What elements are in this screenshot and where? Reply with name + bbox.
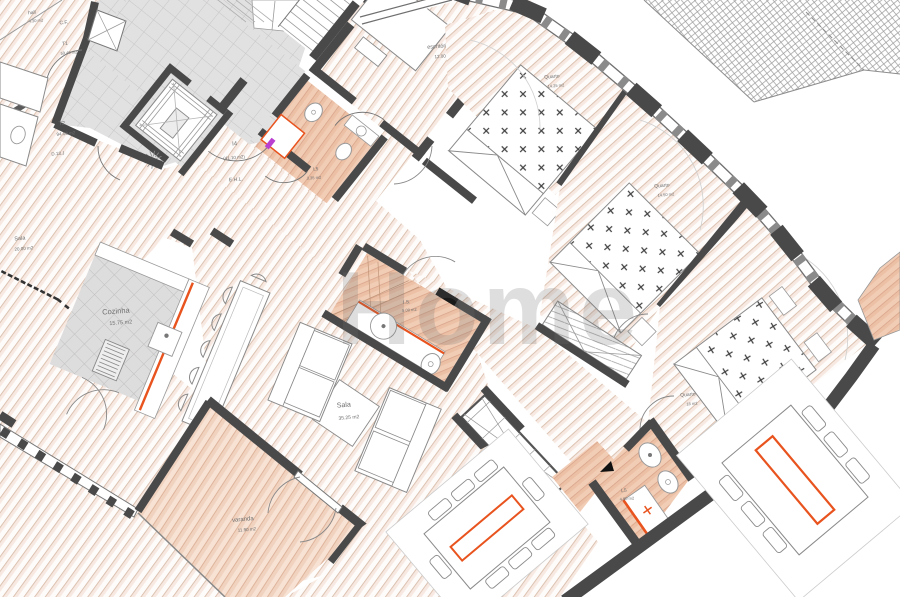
svg-text:L5: L5	[313, 166, 319, 171]
svg-text:T1: T1	[62, 41, 69, 48]
svg-text:T2: T2	[58, 121, 65, 128]
svg-text:C.F.: C.F.	[59, 20, 68, 27]
svg-text:L5: L5	[621, 488, 627, 494]
svg-text:Home: Home	[336, 251, 641, 367]
svg-text:18 m2: 18 m2	[686, 400, 698, 406]
svg-text:hall: hall	[28, 10, 36, 17]
svg-text:E.H.L.: E.H.L.	[229, 176, 243, 183]
svg-text:Sala: Sala	[337, 401, 352, 409]
svg-text:Sala: Sala	[14, 235, 26, 242]
